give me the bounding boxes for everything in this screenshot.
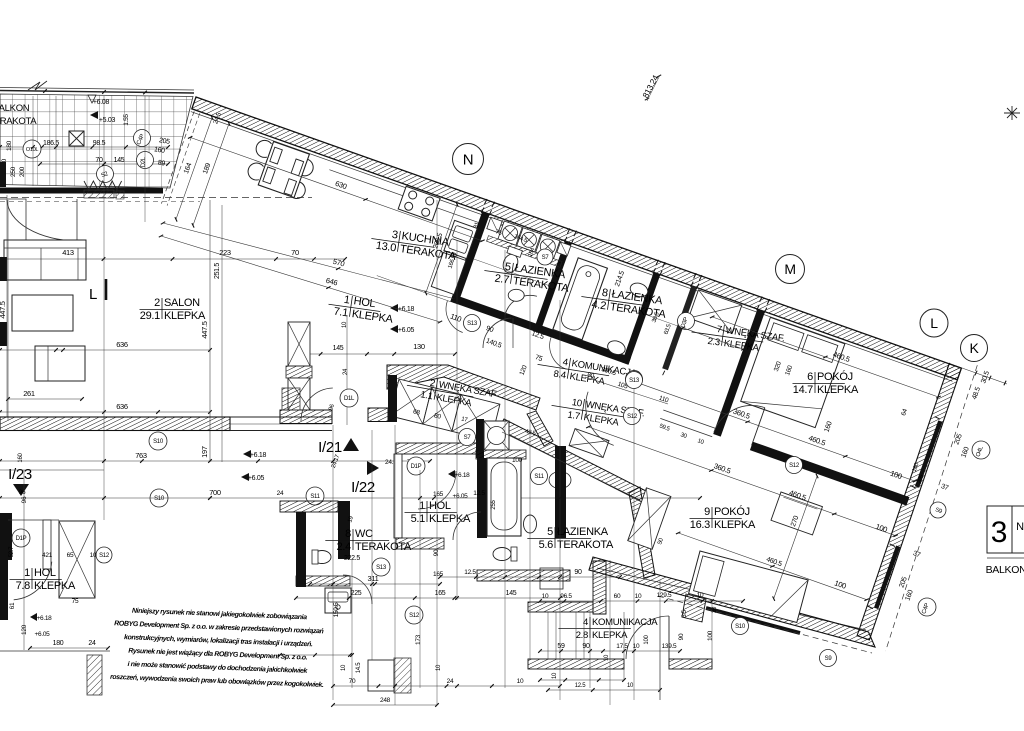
- svg-text:636: 636: [116, 402, 128, 411]
- svg-text:24: 24: [343, 368, 349, 375]
- svg-text:S12: S12: [627, 414, 638, 420]
- svg-text:I/22: I/22: [351, 479, 375, 496]
- svg-text:10: 10: [517, 678, 524, 685]
- svg-text:N: N: [1016, 521, 1024, 533]
- svg-text:S12: S12: [789, 463, 800, 469]
- svg-text:251.5: 251.5: [214, 263, 221, 279]
- svg-text:14.5: 14.5: [356, 662, 362, 673]
- svg-text:4.2: 4.2: [591, 299, 607, 313]
- svg-text:POKÓJ: POKÓJ: [714, 505, 750, 518]
- svg-text:180: 180: [53, 640, 64, 647]
- svg-text:10: 10: [571, 397, 583, 409]
- svg-text:200: 200: [19, 166, 26, 177]
- svg-text:S12: S12: [99, 553, 110, 559]
- svg-text:KLEPKA: KLEPKA: [34, 580, 76, 592]
- svg-text:D1L: D1L: [344, 396, 355, 402]
- svg-text:447.5: 447.5: [0, 301, 7, 318]
- svg-text:I/23: I/23: [8, 466, 32, 483]
- svg-text:90: 90: [433, 549, 440, 556]
- svg-text:59: 59: [557, 643, 565, 650]
- svg-text:S12: S12: [409, 613, 420, 619]
- svg-text:763: 763: [135, 451, 147, 460]
- svg-text:S11: S11: [310, 494, 320, 500]
- svg-text:10: 10: [436, 664, 442, 671]
- svg-text:BALKON: BALKON: [986, 564, 1024, 576]
- svg-text:10: 10: [552, 672, 558, 679]
- svg-text:52.7: 52.7: [9, 546, 15, 557]
- svg-text:250: 250: [10, 166, 17, 177]
- svg-text:197: 197: [200, 446, 209, 458]
- svg-text:D2L: D2L: [141, 156, 147, 167]
- svg-text:8: 8: [345, 528, 351, 540]
- svg-text:24: 24: [277, 490, 284, 497]
- svg-text:225: 225: [351, 590, 362, 597]
- svg-text:1: 1: [24, 567, 30, 579]
- svg-text:98.5: 98.5: [93, 140, 106, 147]
- svg-text:90: 90: [574, 569, 582, 576]
- svg-text:1.7: 1.7: [567, 410, 581, 423]
- svg-text:+5.03: +5.03: [99, 117, 116, 124]
- svg-text:24: 24: [447, 678, 454, 685]
- svg-text:M: M: [784, 261, 795, 277]
- svg-text:TERAKOTA: TERAKOTA: [557, 539, 614, 551]
- svg-text:139.5: 139.5: [662, 643, 677, 650]
- svg-text:2.4: 2.4: [337, 541, 352, 553]
- svg-text:29.1: 29.1: [140, 310, 160, 322]
- svg-text:D1P: D1P: [16, 536, 27, 542]
- svg-text:130: 130: [413, 342, 425, 351]
- svg-text:+6.18: +6.18: [250, 452, 267, 459]
- svg-text:SALON: SALON: [164, 297, 200, 309]
- svg-text:90: 90: [678, 633, 685, 640]
- svg-text:1.55: 1.55: [123, 114, 130, 126]
- svg-text:5.6: 5.6: [539, 539, 554, 551]
- svg-text:75: 75: [72, 598, 79, 605]
- svg-text:145: 145: [114, 157, 125, 164]
- svg-text:S11: S11: [534, 474, 544, 480]
- svg-text:96: 96: [21, 496, 28, 503]
- svg-text:KLEPKA: KLEPKA: [429, 513, 471, 525]
- svg-text:S13: S13: [376, 565, 387, 571]
- svg-text:10: 10: [604, 654, 610, 661]
- svg-text:180: 180: [6, 140, 13, 151]
- svg-text:10: 10: [341, 664, 347, 671]
- svg-text:255: 255: [491, 499, 497, 509]
- svg-text:5: 5: [547, 526, 553, 538]
- svg-text:636: 636: [116, 340, 128, 349]
- svg-text:POKÓJ: POKÓJ: [817, 370, 853, 383]
- svg-text:+6.08: +6.08: [93, 99, 110, 106]
- svg-text:10: 10: [90, 552, 97, 559]
- svg-text:9: 9: [704, 506, 710, 518]
- svg-text:10: 10: [697, 592, 704, 599]
- svg-text:S13: S13: [467, 321, 478, 327]
- svg-text:421: 421: [42, 552, 53, 559]
- svg-text:165: 165: [435, 590, 446, 597]
- svg-text:14.7: 14.7: [793, 384, 813, 396]
- svg-text:8.4: 8.4: [553, 369, 567, 382]
- svg-text:413: 413: [62, 248, 74, 257]
- svg-text:70: 70: [349, 678, 356, 685]
- svg-text:RAKOTA: RAKOTA: [0, 116, 37, 127]
- svg-text:160: 160: [18, 452, 24, 462]
- svg-text:10: 10: [627, 683, 634, 689]
- svg-text:70: 70: [95, 157, 103, 164]
- svg-text:+6.05: +6.05: [453, 493, 469, 500]
- svg-text:2.3: 2.3: [707, 336, 721, 349]
- svg-text:12.5: 12.5: [575, 683, 586, 689]
- svg-text:447.5: 447.5: [200, 321, 209, 338]
- svg-text:145: 145: [333, 345, 344, 352]
- svg-text:150.5: 150.5: [333, 602, 340, 617]
- svg-text:20: 20: [712, 606, 718, 613]
- svg-text:12.5: 12.5: [464, 569, 476, 576]
- svg-text:S13: S13: [629, 378, 640, 384]
- svg-text:100: 100: [707, 630, 714, 641]
- svg-text:KLEPKA: KLEPKA: [817, 384, 859, 396]
- svg-text:S10: S10: [735, 624, 746, 630]
- svg-text:K: K: [969, 340, 979, 356]
- svg-text:+6.05: +6.05: [398, 327, 415, 334]
- svg-text:700: 700: [209, 488, 221, 497]
- svg-text:D1P: D1P: [411, 464, 422, 470]
- svg-text:N: N: [463, 151, 474, 168]
- svg-text:5.1: 5.1: [411, 513, 426, 525]
- svg-text:90: 90: [582, 643, 590, 650]
- svg-text:2.8: 2.8: [576, 630, 588, 641]
- svg-text:ŁAZIENKA: ŁAZIENKA: [557, 526, 609, 538]
- svg-text:61: 61: [9, 602, 16, 609]
- svg-text:145: 145: [506, 590, 517, 597]
- svg-text:129.5: 129.5: [657, 592, 672, 599]
- svg-text:L: L: [930, 315, 938, 331]
- svg-text:5.5: 5.5: [682, 609, 688, 617]
- svg-text:HOL: HOL: [34, 567, 56, 579]
- svg-text:+6.18: +6.18: [37, 615, 53, 622]
- svg-text:60: 60: [614, 593, 621, 600]
- svg-text:S10: S10: [154, 496, 165, 502]
- svg-text:96.5: 96.5: [560, 593, 572, 600]
- svg-text:16.3: 16.3: [690, 519, 710, 531]
- svg-text:2.7: 2.7: [494, 273, 510, 287]
- svg-text:10: 10: [635, 593, 642, 600]
- svg-text:S10: S10: [153, 439, 164, 445]
- svg-text:TERAKOTA: TERAKOTA: [355, 541, 412, 553]
- svg-text:I/21: I/21: [318, 439, 342, 456]
- svg-text:165: 165: [433, 491, 444, 498]
- svg-text:17.5: 17.5: [616, 643, 628, 650]
- svg-text:S9: S9: [825, 656, 833, 662]
- svg-text:7.1: 7.1: [333, 306, 349, 320]
- svg-text:L: L: [89, 286, 97, 303]
- svg-text:3: 3: [991, 516, 1007, 549]
- svg-text:+6.05: +6.05: [35, 631, 51, 638]
- svg-text:10: 10: [542, 593, 549, 600]
- svg-text:65: 65: [67, 552, 74, 559]
- svg-text:173: 173: [415, 634, 422, 645]
- svg-text:165: 165: [433, 571, 444, 578]
- svg-text:KLEPKA: KLEPKA: [164, 310, 206, 322]
- svg-text:1.1: 1.1: [419, 389, 433, 402]
- svg-text:S7: S7: [542, 255, 550, 261]
- svg-text:7.8: 7.8: [16, 580, 31, 592]
- svg-text:6: 6: [807, 371, 813, 383]
- svg-text:248: 248: [380, 697, 391, 704]
- svg-text:261: 261: [23, 389, 35, 398]
- svg-text:KOMUNIKACJA: KOMUNIKACJA: [592, 617, 658, 628]
- svg-text:70: 70: [291, 248, 299, 257]
- svg-text:ALKON: ALKON: [0, 103, 30, 114]
- svg-text:120: 120: [21, 624, 28, 635]
- svg-text:+6.05: +6.05: [248, 475, 265, 482]
- svg-text:2: 2: [154, 297, 160, 309]
- svg-text:WC: WC: [355, 528, 373, 540]
- svg-text:100: 100: [644, 634, 650, 644]
- svg-text:24: 24: [88, 640, 96, 647]
- svg-text:S7: S7: [464, 435, 472, 441]
- svg-text:96: 96: [19, 489, 26, 496]
- svg-text:KLEPKA: KLEPKA: [714, 519, 756, 531]
- svg-text:311: 311: [367, 574, 378, 583]
- svg-text:100: 100: [512, 457, 523, 464]
- svg-text:12.5: 12.5: [473, 490, 485, 497]
